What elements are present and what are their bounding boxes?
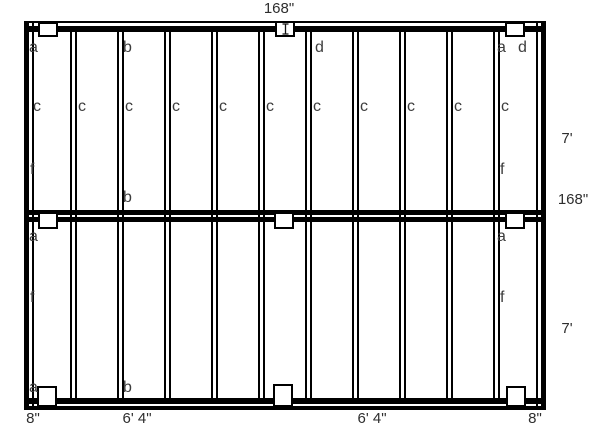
member-label-b: b (123, 380, 132, 396)
joist-5 (258, 32, 265, 398)
joist-3 (164, 32, 171, 398)
dimension-label: 168" (264, 1, 294, 16)
member-label-c: c (501, 99, 509, 115)
post-mid-center (274, 212, 294, 229)
joist-2 (117, 32, 124, 398)
member-label-a: a (29, 229, 38, 245)
post-mid-right (505, 212, 525, 229)
dimension-label: 8" (528, 411, 542, 426)
member-label-c: c (33, 99, 41, 115)
dimension-label: 8" (26, 411, 40, 426)
member-label-c: c (172, 99, 180, 115)
right-rim-inner-line (536, 21, 538, 410)
member-label-c: c (360, 99, 368, 115)
member-label-f: f (30, 290, 34, 306)
dimension-label: 6' 4" (357, 411, 386, 426)
member-label-a: a (29, 40, 38, 56)
joist-10 (493, 32, 500, 398)
joist-6 (305, 32, 312, 398)
member-label-c: c (407, 99, 415, 115)
joist-9 (446, 32, 453, 398)
member-label-d: d (315, 40, 324, 56)
member-label-b: b (123, 190, 132, 206)
joist-4 (211, 32, 218, 398)
member-label-c: c (125, 99, 133, 115)
post-bottom-right (506, 386, 526, 407)
dimension-label: 7' (561, 321, 572, 336)
member-label-f: f (500, 162, 504, 178)
member-label-c: c (78, 99, 86, 115)
post-mid-left (38, 212, 58, 229)
post-top-right (505, 22, 525, 37)
joist-8 (399, 32, 406, 398)
post-top-left (38, 22, 58, 37)
dimension-label: 6' 4" (122, 411, 151, 426)
joist-1 (70, 32, 77, 398)
member-label-d: d (518, 40, 527, 56)
member-label-a: a (497, 40, 506, 56)
post-top-center (275, 21, 295, 37)
post-bottom-left (37, 386, 57, 407)
member-label-a: a (497, 229, 506, 245)
framing-diagram: abdadcccccccccccffbaaffab168"7'168"7'8"6… (0, 0, 600, 439)
left-rim-inner-line (32, 21, 34, 410)
member-label-a: a (29, 380, 38, 396)
joist-7 (352, 32, 359, 398)
member-label-f: f (30, 162, 34, 178)
dimension-label: 7' (561, 131, 572, 146)
member-label-c: c (313, 99, 321, 115)
member-label-c: c (454, 99, 462, 115)
member-label-b: b (123, 40, 132, 56)
member-label-c: c (266, 99, 274, 115)
text-cursor-icon (281, 23, 290, 35)
post-bottom-center (273, 384, 293, 407)
dimension-label: 168" (558, 192, 588, 207)
member-label-f: f (500, 290, 504, 306)
member-label-c: c (219, 99, 227, 115)
